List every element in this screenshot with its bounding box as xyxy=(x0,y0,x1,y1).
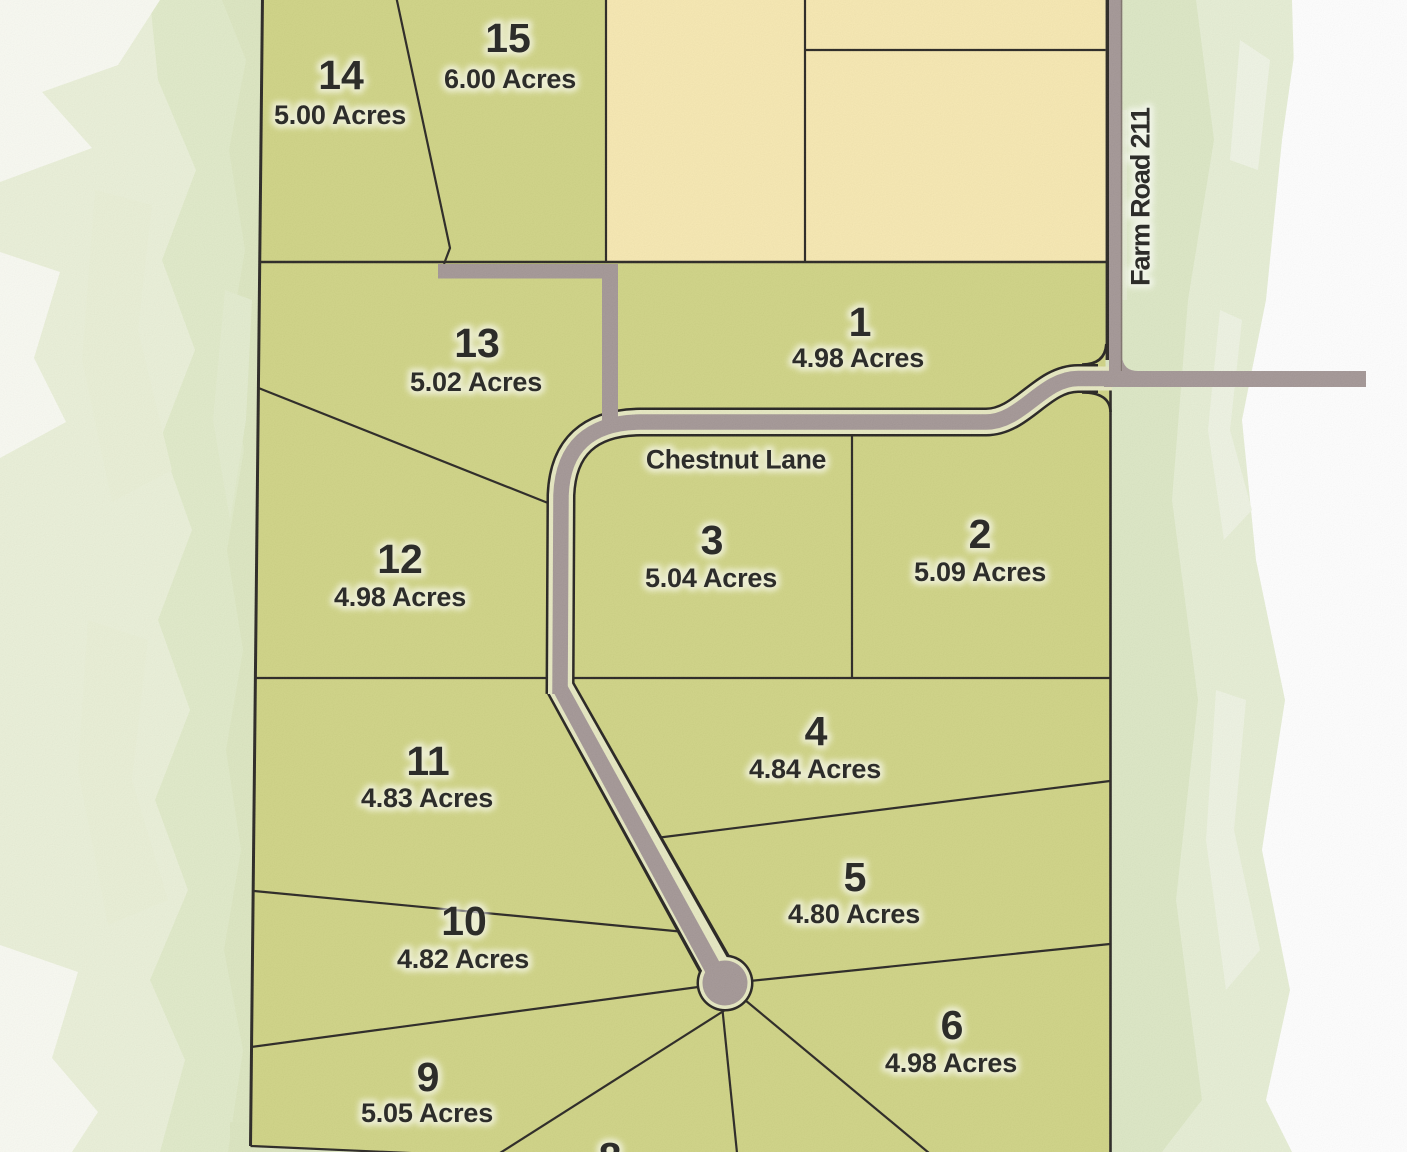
svg-text:4.82 Acres: 4.82 Acres xyxy=(397,944,529,974)
svg-text:2: 2 xyxy=(969,511,992,557)
svg-text:5.04 Acres: 5.04 Acres xyxy=(645,563,777,593)
svg-text:1: 1 xyxy=(849,299,872,345)
svg-text:Farm Road 211: Farm Road 211 xyxy=(1126,107,1156,286)
svg-text:9: 9 xyxy=(417,1054,440,1100)
svg-text:4.84 Acres: 4.84 Acres xyxy=(749,754,881,784)
svg-text:11: 11 xyxy=(406,738,449,784)
svg-text:4: 4 xyxy=(805,708,828,754)
svg-text:6.00 Acres: 6.00 Acres xyxy=(444,64,576,94)
svg-text:4.80 Acres: 4.80 Acres xyxy=(788,899,920,929)
svg-text:14: 14 xyxy=(318,52,364,98)
svg-text:10: 10 xyxy=(441,898,487,944)
svg-text:6: 6 xyxy=(941,1002,964,1048)
svg-text:4.98 Acres: 4.98 Acres xyxy=(334,582,466,612)
svg-text:4.98 Acres: 4.98 Acres xyxy=(885,1048,1017,1078)
svg-text:4.83 Acres: 4.83 Acres xyxy=(361,783,493,813)
svg-text:Chestnut Lane: Chestnut Lane xyxy=(646,445,826,475)
svg-text:5.09 Acres: 5.09 Acres xyxy=(914,557,1046,587)
svg-text:8: 8 xyxy=(599,1134,622,1152)
svg-text:3: 3 xyxy=(701,517,724,563)
svg-text:13: 13 xyxy=(454,320,500,366)
svg-text:5.05 Acres: 5.05 Acres xyxy=(361,1098,493,1128)
svg-text:5: 5 xyxy=(844,854,867,900)
svg-text:12: 12 xyxy=(377,536,423,582)
svg-text:15: 15 xyxy=(485,15,531,61)
svg-text:4.98 Acres: 4.98 Acres xyxy=(792,343,924,373)
svg-text:5.02 Acres: 5.02 Acres xyxy=(410,367,542,397)
svg-text:5.00 Acres: 5.00 Acres xyxy=(274,100,406,130)
